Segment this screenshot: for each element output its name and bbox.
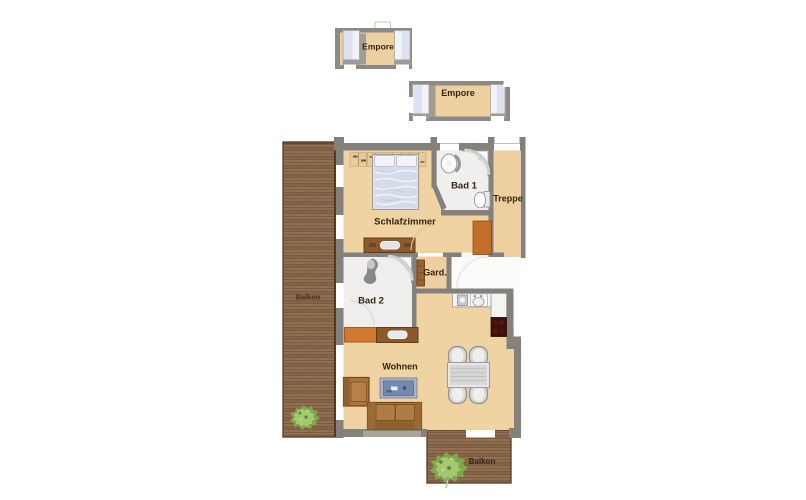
svg-text:Bad 2: Bad 2 — [358, 296, 384, 307]
svg-text:Gard.: Gard. — [423, 268, 447, 278]
svg-text:Bad 1: Bad 1 — [451, 181, 478, 192]
svg-text:Treppe: Treppe — [493, 194, 523, 204]
svg-text:Wohnen: Wohnen — [382, 362, 417, 372]
svg-text:Balkon: Balkon — [296, 293, 320, 302]
svg-text:Empore: Empore — [441, 88, 475, 98]
svg-text:Empore: Empore — [362, 42, 394, 52]
svg-text:Schlafzimmer: Schlafzimmer — [374, 217, 436, 228]
svg-text:Balkon: Balkon — [469, 457, 496, 466]
